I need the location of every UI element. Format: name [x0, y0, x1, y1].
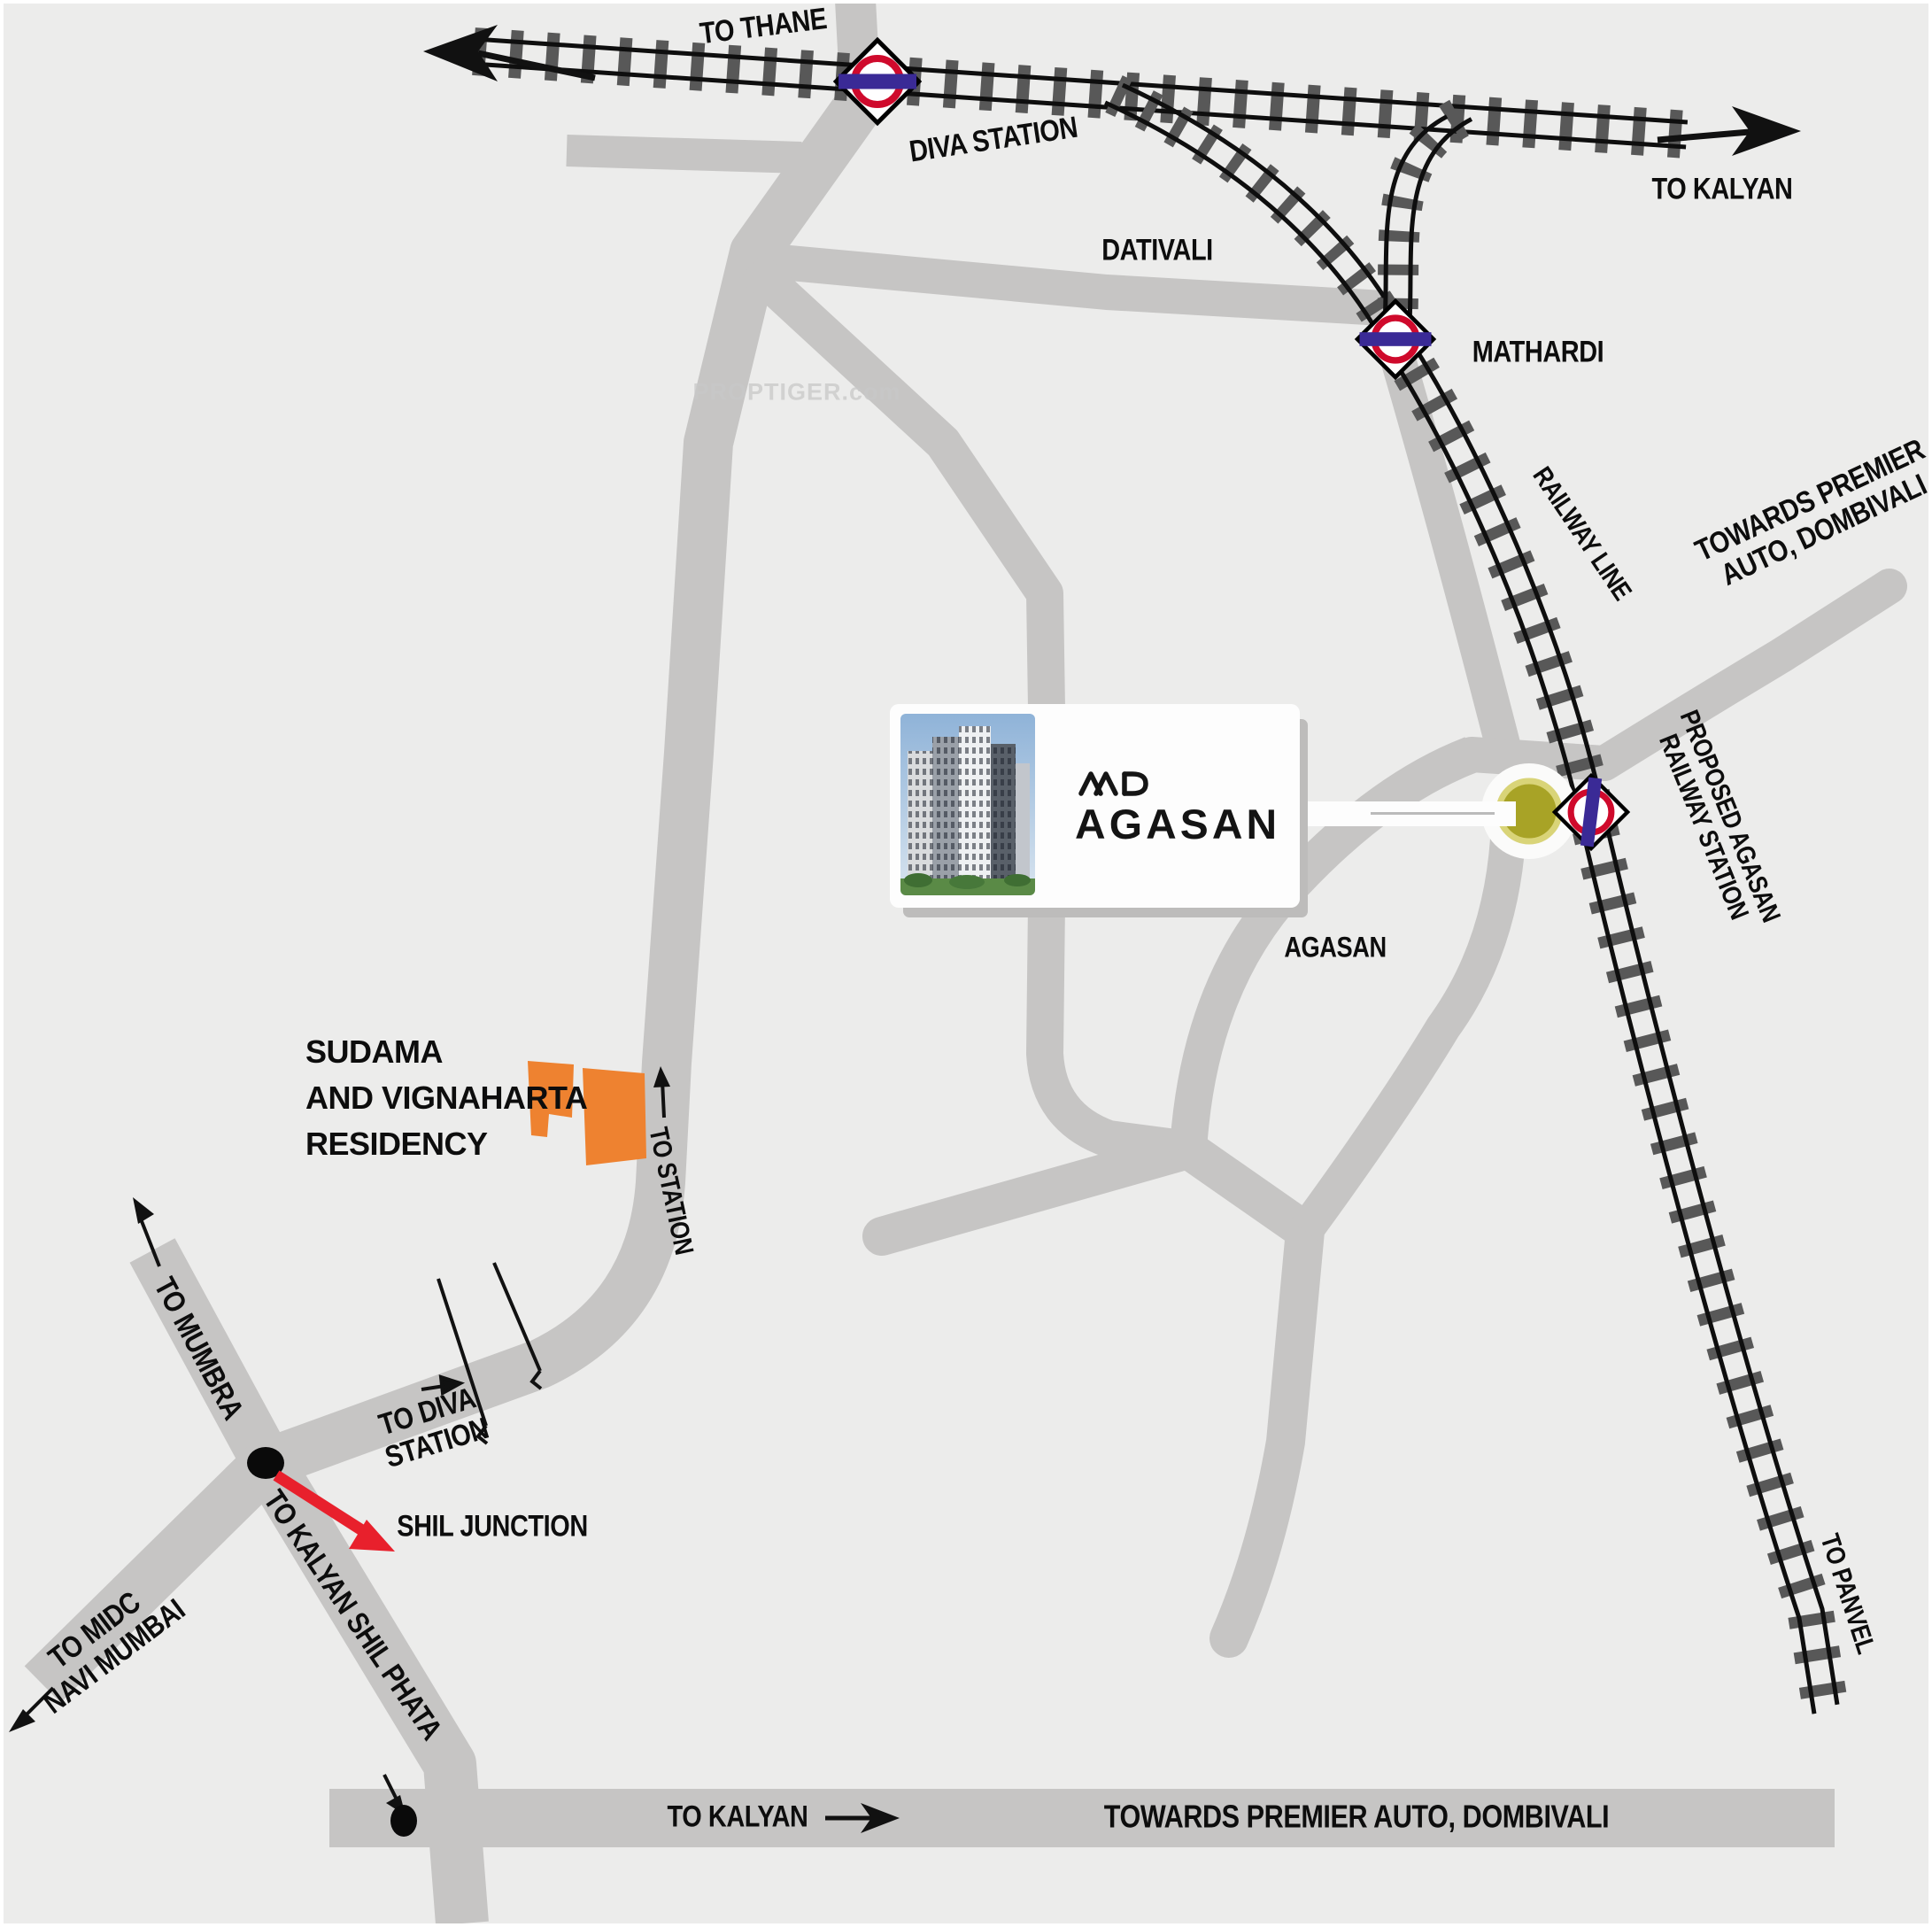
road-junction-south	[1188, 1149, 1305, 1638]
label-mathardi: MATHARDI	[1472, 337, 1604, 369]
watermark: PROPTIGER.com	[692, 379, 900, 406]
direction-arrows	[9, 25, 1801, 1833]
project-name: AGASAN	[1075, 800, 1280, 848]
road-junction-west	[882, 1149, 1188, 1236]
card-leader-line	[1371, 812, 1495, 815]
label-shil-junction: SHIL JUNCTION	[397, 1511, 588, 1544]
map-graphics	[0, 0, 1932, 1927]
label-to-kalyan-bottom: TO KALYAN	[668, 1801, 808, 1834]
label-towards-premier-bottom: TOWARDS PREMIER AUTO, DOMBIVALI	[1104, 1800, 1610, 1835]
road-left-stub	[567, 151, 801, 158]
project-card: AND AGASAN	[890, 704, 1300, 908]
railway-main-line	[473, 39, 1688, 147]
road-below-card	[1045, 903, 1188, 1149]
road-diagonal-to-card	[751, 266, 1047, 708]
road-branch-right	[742, 259, 1383, 308]
label-to-kalyan-top: TO KALYAN	[1652, 174, 1793, 206]
label-dativali: DATIVALI	[1101, 235, 1213, 267]
bottom-road-junction-dot	[390, 1805, 417, 1837]
label-sudama-residency: SUDAMA AND VIGNAHARTA RESIDENCY	[305, 1029, 587, 1168]
building-photo	[900, 714, 1035, 895]
plot-large	[583, 1068, 646, 1165]
label-agasan-village: AGASAN	[1284, 933, 1386, 963]
location-map: AND AGASAN TO THANE DIVA STATION TO KALY…	[0, 0, 1932, 1927]
and-logo: AND	[1078, 770, 1163, 802]
road-around-site	[1305, 840, 1508, 1231]
